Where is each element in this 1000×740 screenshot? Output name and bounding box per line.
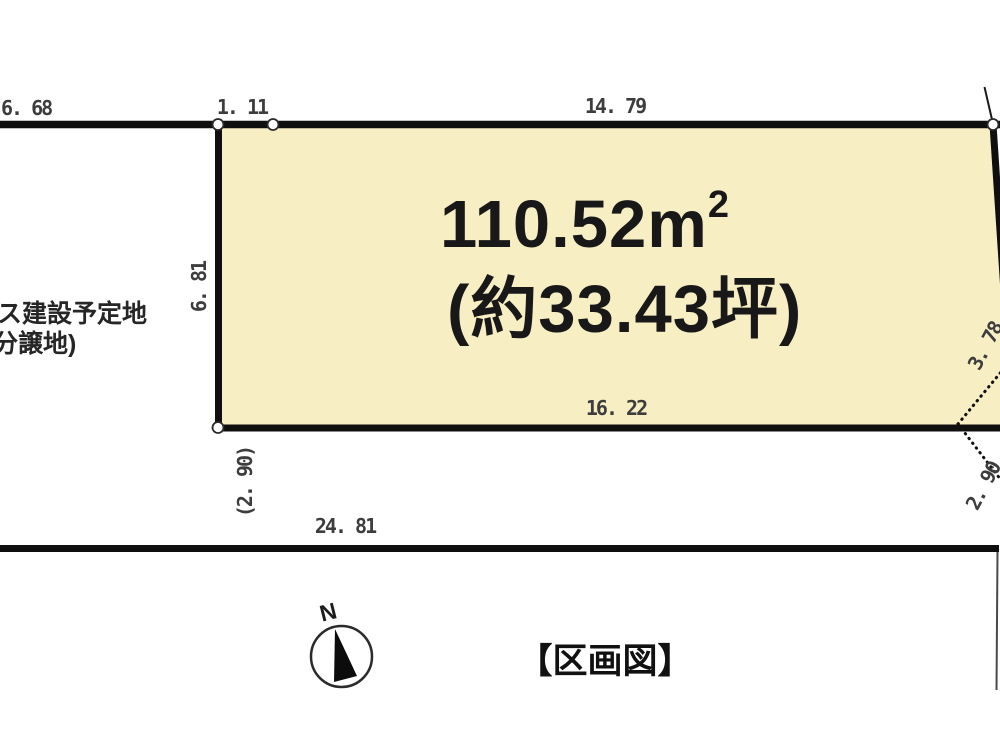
side-note-line2: 分譲地) <box>0 330 147 360</box>
vertex-marker-top-left <box>213 119 224 130</box>
parcel-area-tsubo: (約33.43坪) <box>447 276 802 343</box>
parcel-area-unit-exponent: 2 <box>708 184 729 226</box>
vertex-marker-top-right <box>988 119 999 130</box>
plot-diagram: 6. 68 1. 11 14. 79 6. 81 16. 22 (2. 90) … <box>0 0 1000 740</box>
page-title: 【区画図】 <box>517 633 692 684</box>
side-note: ス建設予定地 分譲地) <box>0 300 147 359</box>
dimension-road-frontage: 24. 81 <box>315 514 375 538</box>
bottom-right-boundary-line <box>997 552 998 690</box>
dimension-top-left-road: 6. 68 <box>1 96 51 120</box>
dimension-top-edge: 14. 79 <box>585 94 645 118</box>
vertex-marker-bottom-left <box>213 422 224 433</box>
dimension-top-offset: 1. 11 <box>217 95 267 119</box>
parcel-area-value: 110.52 <box>440 187 647 262</box>
parcel-area-line: 110.52m2 <box>440 186 729 258</box>
dimension-left-lower: (2. 90) <box>233 447 257 517</box>
side-note-line1: ス建設予定地 <box>0 300 147 330</box>
dimension-left-edge: 6. 81 <box>187 262 211 312</box>
dimension-bottom-edge: 16. 22 <box>586 396 646 420</box>
plot-diagram-drawing <box>0 0 1000 740</box>
parcel-area-unit: m <box>647 187 708 262</box>
vertex-marker-top-offset <box>268 119 279 130</box>
